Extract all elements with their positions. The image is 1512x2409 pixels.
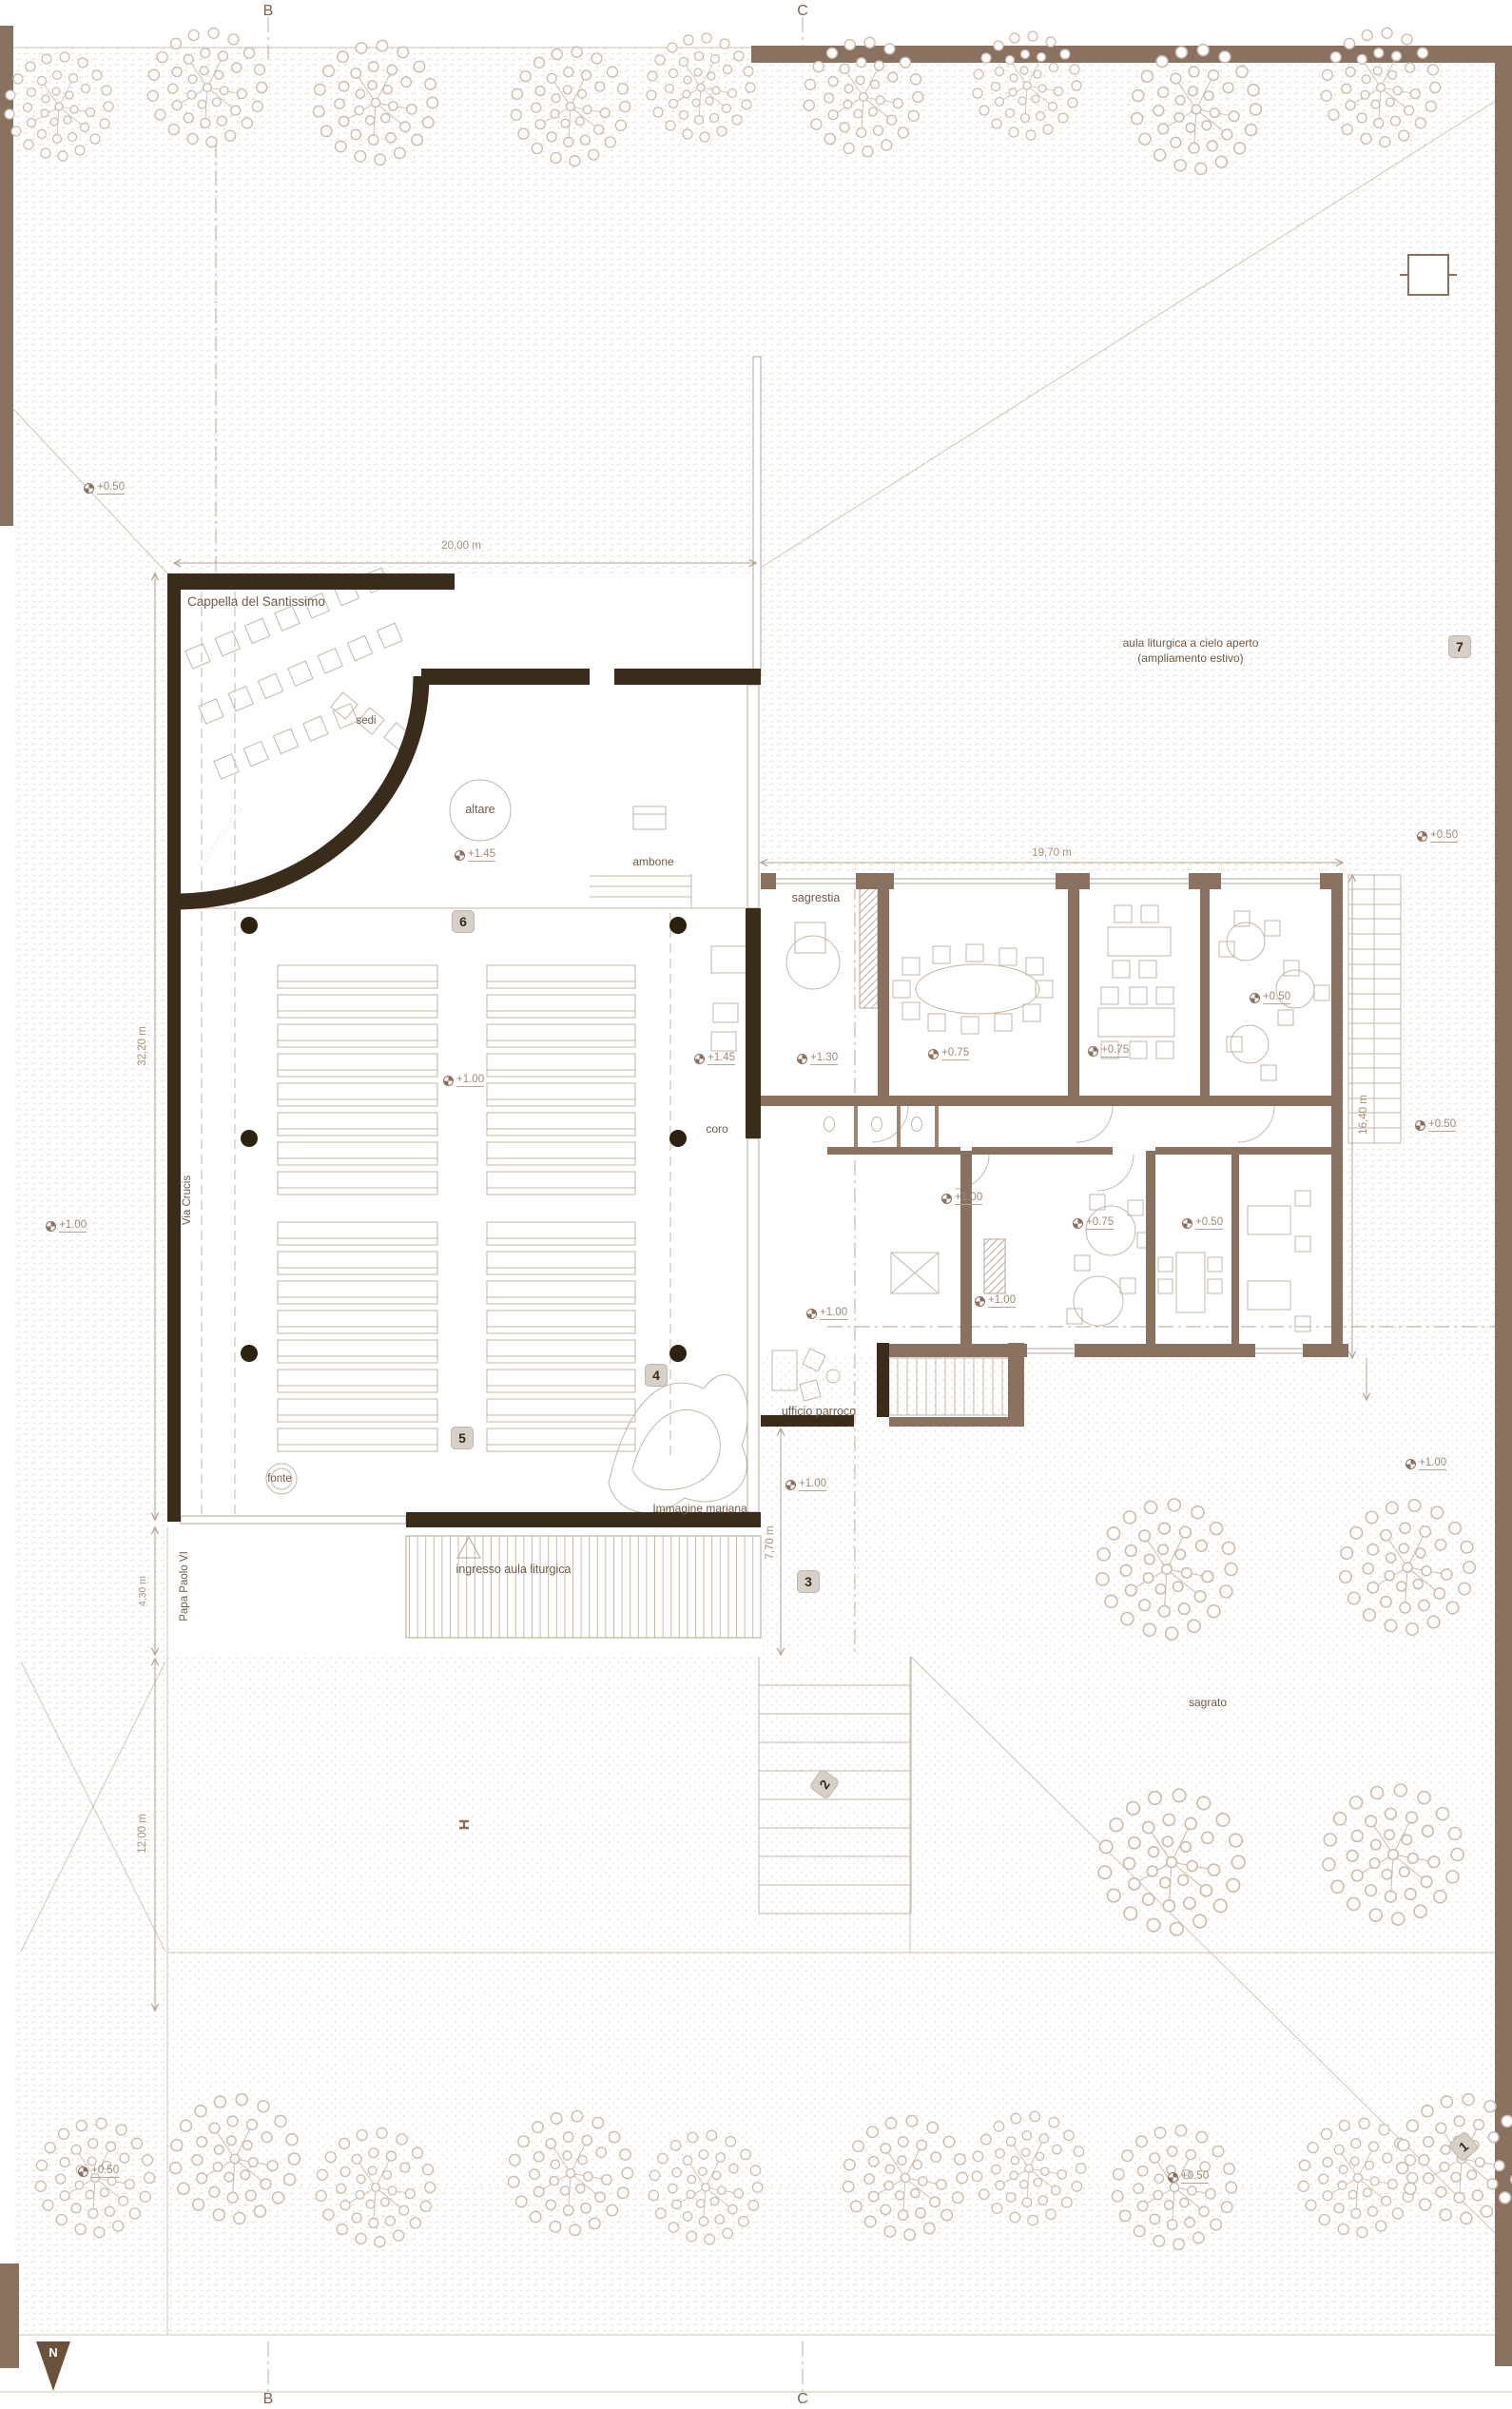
level-icon — [1415, 1120, 1425, 1131]
camera-icon — [456, 1415, 468, 1427]
level-icon — [84, 483, 94, 494]
wall-opening — [590, 667, 614, 687]
level-icon — [797, 1054, 807, 1064]
site-element-square — [1408, 255, 1448, 295]
level-icon — [1073, 1218, 1083, 1229]
label-ufficio-parroco: ufficio parroco — [782, 1405, 856, 1418]
label-fonte: fonte — [267, 1473, 292, 1485]
label-via-crucis: Via Crucis — [182, 1175, 193, 1225]
label-immagine-mariana: Immagine mariana — [652, 1502, 746, 1515]
camera-icon — [785, 1576, 797, 1587]
camera-icon — [1437, 641, 1448, 652]
level-marker: +1.45 — [694, 1052, 735, 1065]
label-sagrato: sagrato — [1189, 1696, 1227, 1709]
label-sagrestia: sagrestia — [792, 891, 841, 904]
level-icon — [806, 1309, 817, 1319]
dim-20m: 20,00 m — [441, 540, 481, 552]
entrance-canopy — [406, 1536, 761, 1638]
level-marker: +0.75 — [1088, 1044, 1129, 1058]
dim-19-70m: 19,70 m — [1032, 847, 1072, 859]
level-marker: +1.00 — [443, 1074, 484, 1087]
level-icon — [1405, 1459, 1416, 1469]
camera-icon — [457, 933, 469, 944]
label-sedi: sedi — [356, 715, 376, 727]
label-aula-aperta: aula liturgica a cielo aperto (ampliamen… — [1123, 635, 1259, 666]
level-marker: +0.50 — [1182, 1216, 1223, 1230]
level-icon — [1182, 1218, 1192, 1229]
floor-plan: B C B C N Cappella del Santissimo sedi t… — [0, 0, 1512, 2409]
level-marker: +0.50 — [1417, 829, 1458, 843]
viewpoint-marker-3: 3 — [797, 1570, 820, 1593]
level-marker: +1.30 — [797, 1052, 838, 1065]
level-icon — [928, 1049, 939, 1059]
level-marker: +0.50 — [1415, 1118, 1456, 1132]
level-icon — [46, 1221, 56, 1232]
north-label: N — [48, 2345, 57, 2360]
section-marker-c-top: C — [797, 3, 808, 20]
level-icon — [941, 1194, 952, 1204]
dim-4-30m: 4,30 m — [137, 1576, 148, 1606]
label-coro: coro — [706, 1122, 727, 1136]
level-icon — [694, 1054, 705, 1064]
section-marker-c-bottom: C — [797, 2391, 808, 2408]
level-marker: +1.00 — [785, 1478, 826, 1491]
level-marker: +0.50 — [1250, 991, 1290, 1004]
level-marker: +1.00 — [975, 1294, 1016, 1308]
level-marker: +1.00 — [46, 1219, 87, 1233]
level-icon — [443, 1076, 454, 1086]
level-icon — [1168, 2172, 1178, 2183]
section-marker-b-bottom: B — [263, 2391, 274, 2408]
level-marker: +1.45 — [455, 848, 495, 862]
level-marker: +0.50 — [78, 2165, 119, 2178]
viewpoint-marker-7: 7 — [1448, 635, 1471, 658]
level-marker: +0.75 — [928, 1047, 969, 1060]
floor-plan-drawing — [0, 0, 1512, 2409]
site-wall-west-lower — [0, 2263, 19, 2368]
freestanding-wall — [753, 357, 761, 676]
choir-east-wall — [746, 908, 761, 1138]
site-wall-west-upper — [0, 26, 13, 526]
label-cappella: Cappella del Santissimo — [187, 594, 325, 609]
level-marker: +1.00 — [1405, 1457, 1446, 1470]
label-ingresso-aula: ingresso aula liturgica — [456, 1563, 572, 1576]
section-marker-b-top: B — [263, 3, 274, 20]
dim-7-70m: 7,70 m — [765, 1525, 776, 1559]
dim-12-00m: 12,00 m — [137, 1814, 148, 1854]
level-icon — [975, 1296, 985, 1307]
level-marker: +0.50 — [1168, 2170, 1209, 2184]
chapel-north-wall — [167, 573, 455, 590]
level-icon — [455, 850, 465, 861]
label-altare: altare — [465, 803, 494, 816]
label-papa-paolo-vi: Papa Paolo VI — [179, 1551, 190, 1622]
dim-16-40m: 16,40 m — [1358, 1095, 1369, 1135]
level-marker: +0.75 — [1073, 1216, 1114, 1230]
level-marker: +1.00 — [941, 1192, 982, 1205]
level-icon — [78, 2166, 88, 2177]
site-wall-east — [1495, 46, 1512, 2366]
level-icon — [1088, 1046, 1098, 1057]
level-icon — [1250, 993, 1260, 1003]
label-ambone: ambone — [632, 855, 673, 868]
level-icon — [1417, 831, 1427, 842]
viewpoint-marker-5: 5 — [451, 1427, 474, 1449]
church-west-wall — [167, 573, 181, 1522]
level-marker: +0.50 — [84, 481, 125, 495]
viewpoint-marker-4: 4 — [645, 1364, 668, 1387]
camera-icon — [650, 1387, 662, 1398]
dim-32-20m: 32,20 m — [137, 1026, 148, 1066]
level-icon — [785, 1480, 796, 1490]
viewpoint-marker-6: 6 — [452, 910, 475, 933]
level-marker: +1.00 — [806, 1307, 847, 1320]
